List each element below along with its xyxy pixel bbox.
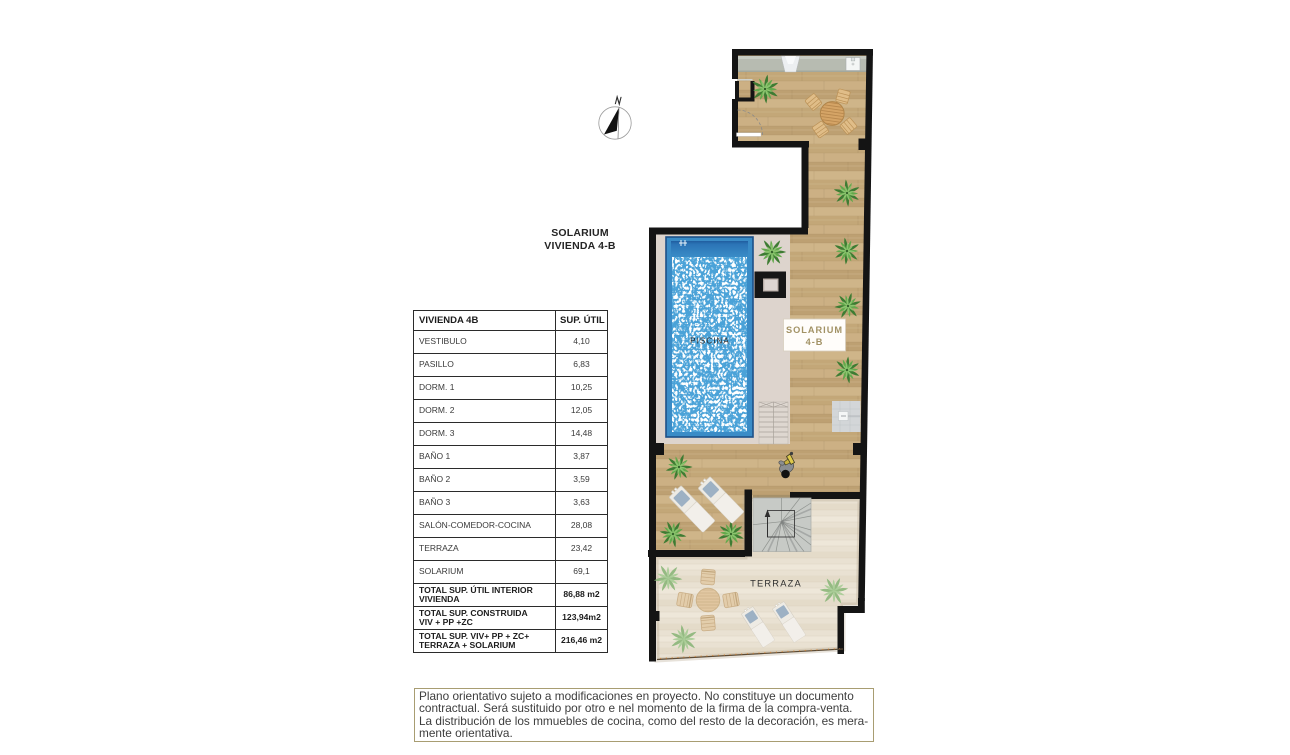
- svg-text:SOLARIUM: SOLARIUM: [786, 325, 843, 335]
- svg-text:PISCINA: PISCINA: [690, 337, 730, 346]
- svg-text:TERRAZA: TERRAZA: [750, 579, 802, 589]
- svg-text:4-B: 4-B: [806, 337, 824, 347]
